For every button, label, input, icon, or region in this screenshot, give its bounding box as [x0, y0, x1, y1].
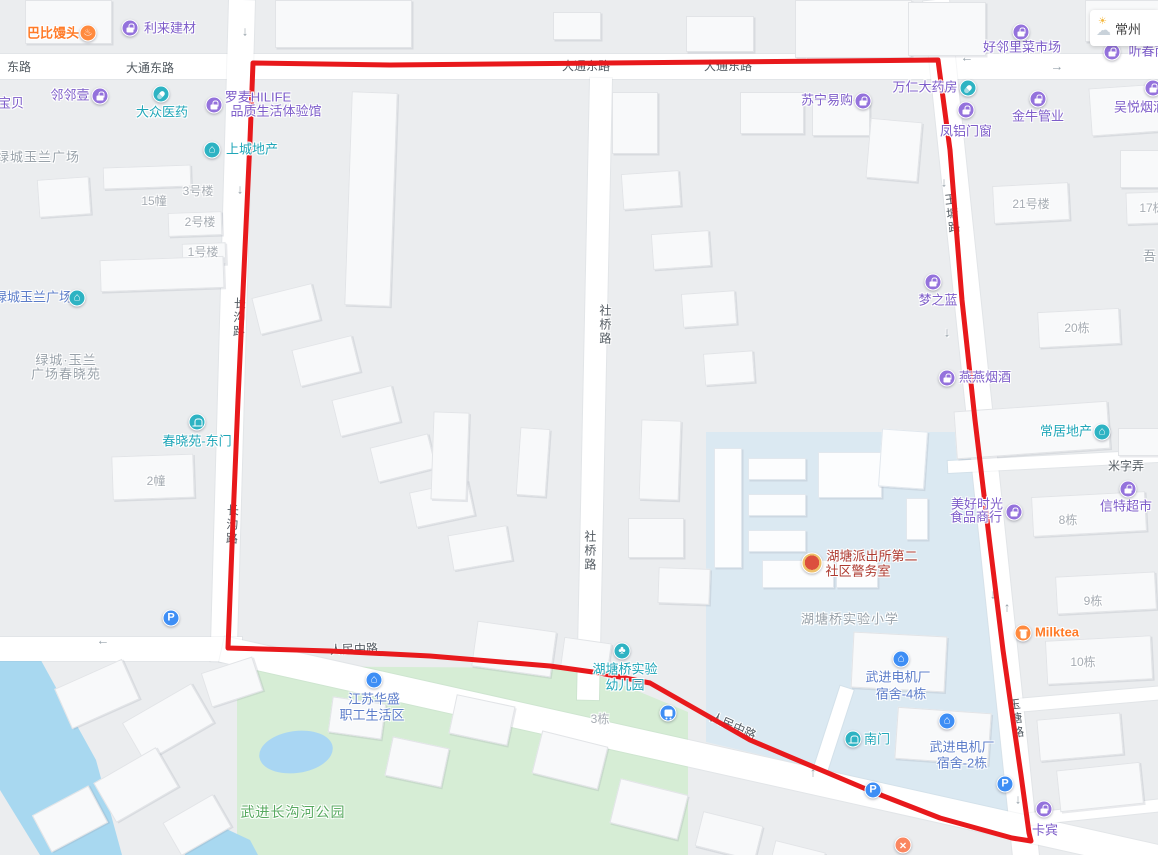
bag-icon[interactable] [925, 274, 942, 291]
road-direction-arrow: ↑ [810, 765, 817, 780]
building [291, 335, 360, 387]
police-icon[interactable] [802, 553, 823, 574]
road-direction-arrow: ← [804, 51, 817, 66]
bag-icon[interactable] [939, 370, 956, 387]
poi-label[interactable]: 信特超市 [1100, 500, 1152, 515]
building [37, 176, 92, 218]
P-icon[interactable]: P [997, 776, 1014, 793]
road-direction-arrow: ← [274, 640, 287, 655]
building-icon[interactable]: ⌂ [939, 713, 956, 730]
building [621, 170, 681, 210]
poi-label[interactable]: 湖塘桥实验 [592, 663, 657, 678]
poi-label[interactable]: 吴悦烟酒 [1114, 101, 1158, 116]
building [770, 840, 826, 855]
xmark-icon[interactable]: × [895, 837, 912, 854]
building [103, 164, 192, 189]
pill-icon[interactable] [960, 80, 977, 97]
poi-label[interactable]: 万仁大药房 [892, 81, 957, 96]
bus-icon[interactable] [660, 705, 677, 722]
road-label: 大通东路 [126, 62, 174, 76]
campus-building [748, 530, 806, 552]
poi-label[interactable]: 苏宁易购 [801, 94, 853, 109]
building [32, 785, 108, 852]
building [1120, 150, 1158, 188]
building [201, 657, 263, 708]
building [795, 0, 912, 58]
road-label: 人民中路 [708, 711, 757, 743]
road-east-branch [1015, 686, 1158, 712]
bag-icon[interactable] [1104, 44, 1121, 61]
bag-icon[interactable] [1030, 91, 1047, 108]
bag-icon[interactable] [1120, 481, 1137, 498]
road-label: 东路 [7, 61, 31, 75]
poi-label[interactable]: 听春南 [1128, 45, 1158, 60]
building [430, 411, 469, 500]
road-label: 社桥路 [582, 530, 596, 572]
building-label: 8栋 [1059, 514, 1078, 528]
building [251, 283, 320, 335]
poi-label[interactable]: 品质生活体验馆 [230, 105, 321, 120]
building [275, 0, 412, 48]
building [740, 92, 804, 134]
building [703, 350, 755, 385]
road-direction-arrow: ← [961, 50, 974, 65]
building [162, 794, 231, 855]
building-label: 广场春晓苑 [31, 368, 101, 383]
building [681, 290, 737, 328]
building-label: 1号楼 [188, 246, 219, 260]
poi-label[interactable]: 巴比馒头 [27, 27, 79, 42]
poi-label[interactable]: 江苏华盛 [348, 693, 400, 708]
building-icon[interactable]: ⌂ [204, 142, 221, 159]
building-label: 吾 [1143, 250, 1157, 265]
building [471, 621, 557, 678]
campus-building [748, 458, 806, 480]
road-label: 长沟路 [230, 297, 245, 339]
building-icon[interactable]: ⌂ [69, 290, 86, 307]
sun-icon: ☀ [1098, 16, 1107, 27]
campus-building [748, 494, 806, 516]
building-icon[interactable]: ⌂ [893, 651, 910, 668]
building [1036, 712, 1123, 761]
road-direction-arrow: ← [97, 633, 110, 648]
road-direction-arrow: ↑ [1004, 600, 1011, 615]
cup-icon[interactable] [1015, 625, 1032, 642]
building [553, 12, 601, 40]
poi-label[interactable]: 燕燕烟酒 [959, 371, 1011, 386]
road-campus-access [814, 686, 854, 771]
poi-label[interactable]: 宝贝 [0, 97, 24, 112]
poi-label[interactable]: 湖塘派出所第二 [826, 550, 917, 565]
road-label: 大通东路 [704, 60, 752, 74]
building-label: 绿城玉兰广场 [0, 151, 80, 166]
building-label: 9栋 [1084, 595, 1103, 609]
building [609, 778, 688, 840]
poi-label[interactable]: 利来建材 [144, 22, 196, 37]
poi-label[interactable]: 幼儿园 [605, 679, 644, 694]
building [628, 518, 684, 558]
building [865, 118, 922, 182]
bag-icon[interactable] [122, 20, 139, 37]
poi-label[interactable]: 上城地产 [226, 143, 278, 158]
poi-label[interactable]: 春晓苑-东门 [162, 435, 231, 450]
door-icon[interactable] [189, 414, 206, 431]
pill-icon[interactable] [153, 86, 170, 103]
building [447, 525, 512, 571]
bag-icon[interactable] [1006, 504, 1023, 521]
campus-building [762, 560, 834, 588]
building-icon[interactable]: ⌂ [1094, 424, 1111, 441]
building [657, 567, 710, 605]
road-label: 人民中路 [330, 642, 378, 657]
building [93, 747, 178, 823]
campus-building [714, 448, 742, 568]
poi-label[interactable]: 宿舍-2栋 [937, 757, 988, 772]
road-direction-arrow: ↓ [242, 24, 249, 39]
poi-label[interactable]: 武进长沟河公园 [241, 804, 346, 820]
bag-icon[interactable] [92, 88, 109, 105]
building [370, 433, 437, 482]
building [1056, 762, 1144, 813]
building-label: 3栋 [591, 713, 610, 727]
poi-label[interactable]: 金牛管业 [1012, 110, 1064, 125]
campus-building [818, 452, 882, 498]
poi-label[interactable]: 宿舍-4栋 [876, 688, 927, 703]
weather-city: 常州 [1115, 19, 1141, 38]
poi-label[interactable]: 卡宾 [1032, 824, 1058, 839]
tree-icon[interactable]: ♣ [614, 643, 631, 660]
poi-label[interactable]: 绿城玉兰广场 [0, 291, 72, 306]
building-label: 15幢 [141, 195, 166, 209]
building-label: 2号楼 [185, 216, 216, 230]
park-pond [256, 726, 335, 778]
building-label: 2幢 [147, 475, 166, 489]
building [651, 230, 711, 270]
road-direction-arrow: ← [486, 55, 499, 70]
poi-label[interactable]: 凤铝门窗 [940, 125, 992, 140]
building-label: 20栋 [1064, 322, 1089, 336]
road-direction-arrow: ↓ [941, 175, 948, 190]
poi-label[interactable]: 职工生活区 [339, 709, 404, 724]
road-label: 大通东路 [562, 60, 610, 74]
building [384, 736, 449, 787]
weather-widget[interactable]: ☀ ☁ 常州 [1090, 10, 1158, 46]
building [612, 92, 658, 154]
campus-building [878, 428, 928, 489]
P-icon[interactable]: P [163, 610, 180, 627]
door-icon[interactable] [845, 731, 862, 748]
bag-icon[interactable] [1036, 801, 1053, 818]
road-direction-arrow: ↓ [990, 587, 997, 602]
road-direction-arrow: ↓ [944, 325, 951, 340]
bag-icon[interactable] [206, 97, 223, 114]
building [344, 91, 397, 306]
bag-icon[interactable] [855, 93, 872, 110]
map-canvas[interactable]: 东路大通东路大通东路大通东路人民中路人民中路社桥路社桥路长沟路长沟路玉塘路玉塘路… [0, 0, 1158, 855]
poi-label[interactable]: 大众医药 [136, 106, 188, 121]
poi-label[interactable]: 好邻里菜市场 [983, 41, 1061, 56]
bag-icon[interactable] [1145, 80, 1158, 97]
building-icon[interactable]: ⌂ [366, 672, 383, 689]
building [1055, 571, 1157, 614]
poi-label[interactable]: 常居地产 [1040, 425, 1092, 440]
building-label: 3号楼 [183, 185, 214, 199]
building [1118, 428, 1158, 456]
building [1045, 635, 1153, 684]
road-direction-arrow: ↓ [1015, 792, 1022, 807]
P-icon[interactable]: P [865, 782, 882, 799]
building-label: 21号楼 [1012, 198, 1049, 212]
poi-label[interactable]: 社区警务室 [825, 565, 890, 580]
road-sheqiao [577, 78, 612, 700]
road-label: 长沟路 [223, 504, 238, 546]
building [639, 419, 682, 500]
road-direction-arrow: → [1051, 59, 1064, 74]
building-label: 湖塘桥实验小学 [801, 613, 899, 628]
poi-label[interactable]: 南门 [864, 733, 890, 748]
road-label: 社桥路 [597, 304, 611, 346]
poi-label[interactable]: 梦之蓝 [918, 294, 957, 309]
poi-label[interactable]: 武进电机厂 [865, 671, 930, 686]
building [908, 2, 986, 56]
road-west-segment [0, 637, 242, 661]
poi-label[interactable]: 邻邻壹 [50, 89, 89, 104]
building [695, 811, 764, 855]
road-direction-arrow: ↓ [237, 182, 244, 197]
bag-icon[interactable] [958, 102, 975, 119]
poi-label[interactable]: Milktea [1035, 626, 1079, 641]
building-label: 17栋 [1139, 202, 1158, 216]
road-label: 米字弄 [1108, 460, 1144, 474]
bag-icon[interactable] [1013, 24, 1030, 41]
poi-label[interactable]: 食品商行 [950, 511, 1002, 526]
hand-icon[interactable]: ♨ [80, 25, 97, 42]
building [686, 16, 754, 52]
building-label: 10栋 [1070, 656, 1095, 670]
building [516, 427, 551, 497]
campus-building [906, 498, 928, 540]
building [99, 256, 224, 292]
poi-label[interactable]: 武进电机厂 [929, 741, 994, 756]
building [331, 385, 400, 437]
